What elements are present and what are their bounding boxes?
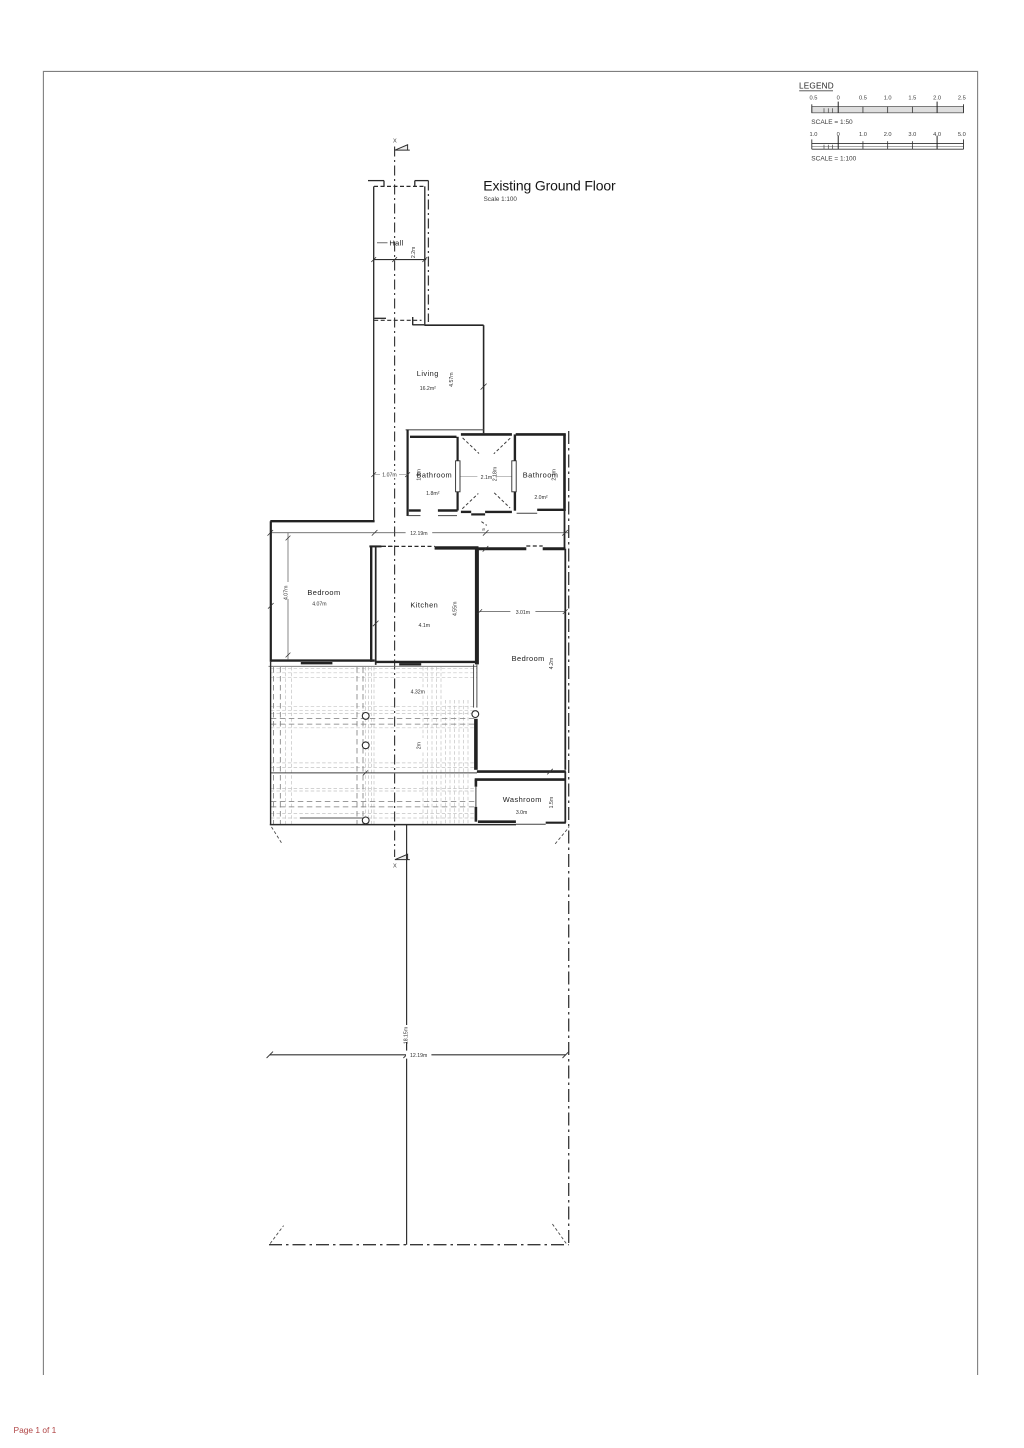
svg-text:2.2m: 2.2m (411, 247, 417, 259)
svg-text:2.1m: 2.1m (552, 469, 558, 481)
svg-text:Bedroom: Bedroom (512, 654, 545, 663)
svg-text:12.19m: 12.19m (410, 531, 427, 537)
svg-text:4.55m: 4.55m (453, 602, 459, 616)
svg-text:LEGEND: LEGEND (799, 82, 834, 91)
svg-text:Bedroom: Bedroom (307, 588, 340, 597)
svg-text:1.0: 1.0 (859, 132, 867, 138)
svg-text:18.15m: 18.15m (404, 1027, 410, 1044)
svg-text:4.1m: 4.1m (419, 623, 431, 629)
svg-text:1.0: 1.0 (884, 95, 892, 101)
svg-text:2.18m: 2.18m (492, 467, 498, 481)
svg-text:Scale 1:100: Scale 1:100 (484, 196, 518, 203)
svg-text:3.01m: 3.01m (516, 610, 530, 616)
svg-text:Living: Living (417, 369, 439, 378)
svg-text:4.32m: 4.32m (411, 689, 425, 695)
svg-text:0: 0 (837, 95, 840, 101)
svg-text:2.0: 2.0 (933, 95, 941, 101)
svg-text:3.0m: 3.0m (516, 810, 528, 816)
svg-text:0.5: 0.5 (859, 95, 867, 101)
svg-text:Hall: Hall (389, 238, 404, 247)
svg-text:1.8m²: 1.8m² (426, 491, 440, 497)
svg-text:1.07m: 1.07m (382, 473, 396, 479)
svg-text:Page 1 of 1: Page 1 of 1 (14, 1425, 57, 1435)
svg-text:X: X (393, 139, 397, 145)
svg-text:2.0m²: 2.0m² (534, 495, 548, 501)
svg-text:0.5: 0.5 (810, 95, 818, 101)
svg-text:SCALE = 1:50: SCALE = 1:50 (811, 119, 853, 126)
svg-text:16.2m²: 16.2m² (420, 386, 436, 392)
svg-text:1.5: 1.5 (908, 95, 916, 101)
svg-text:12.19m: 12.19m (410, 1053, 427, 1059)
svg-text:4.57m: 4.57m (449, 372, 455, 386)
svg-text:Existing Ground Floor: Existing Ground Floor (483, 178, 616, 194)
svg-text:1.0: 1.0 (810, 132, 818, 138)
svg-text:4.2m: 4.2m (549, 658, 555, 670)
svg-text:5.0: 5.0 (958, 132, 966, 138)
svg-text:2.5: 2.5 (958, 95, 966, 101)
svg-text:2.0: 2.0 (884, 132, 892, 138)
svg-text:1.5m: 1.5m (549, 797, 555, 809)
svg-text:1.9m: 1.9m (416, 469, 422, 481)
svg-text:3.0: 3.0 (908, 132, 916, 138)
svg-text:2.1m: 2.1m (481, 475, 493, 481)
svg-text:2m: 2m (417, 742, 423, 749)
svg-text:Washroom: Washroom (503, 795, 542, 804)
svg-text:Kitchen: Kitchen (410, 600, 438, 609)
svg-text:4.07m: 4.07m (284, 586, 290, 600)
svg-text:X: X (393, 863, 397, 869)
svg-text:4.07m: 4.07m (312, 602, 326, 608)
svg-text:SCALE = 1:100: SCALE = 1:100 (811, 156, 856, 163)
